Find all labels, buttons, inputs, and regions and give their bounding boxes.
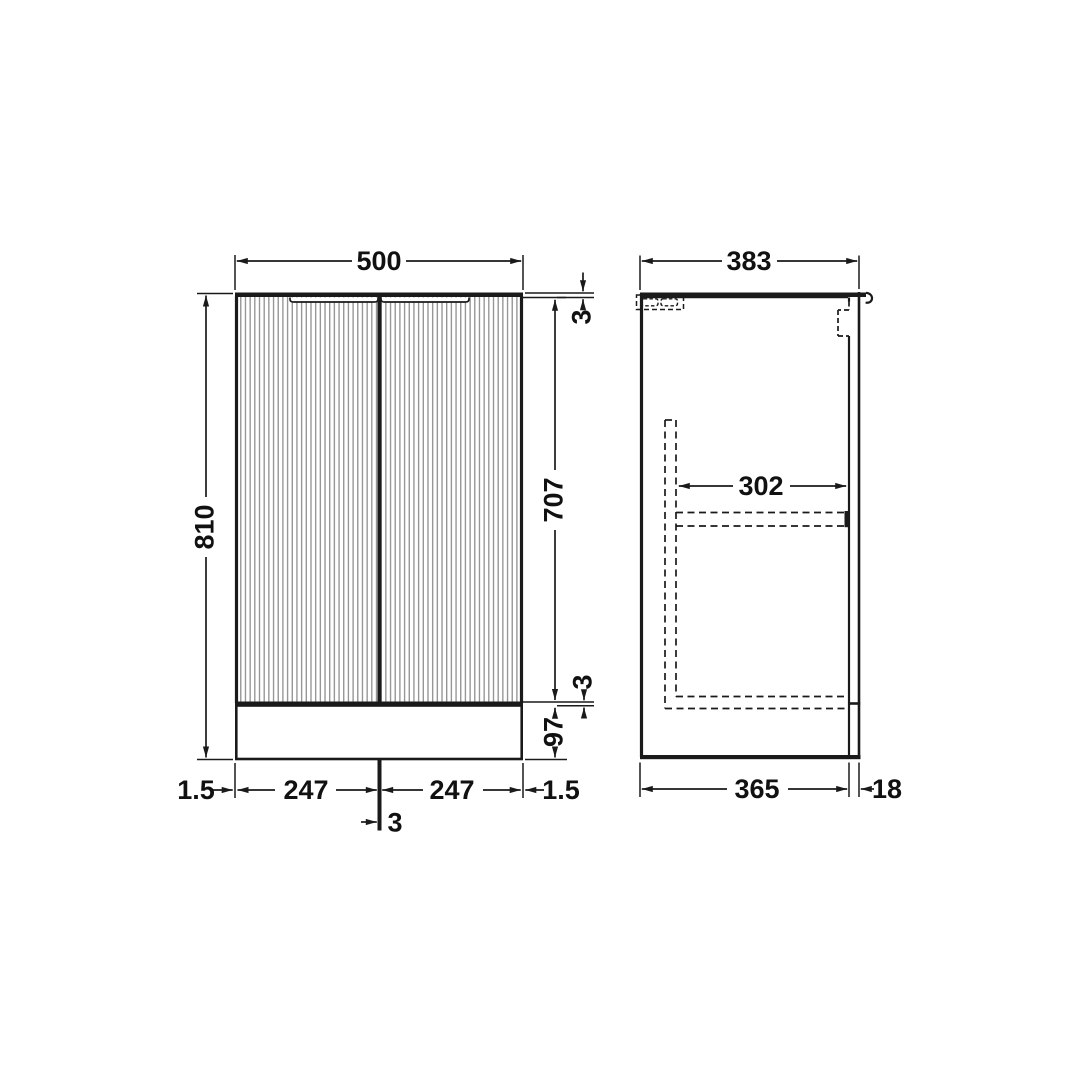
dim-front-centre-gap: 3 [387,808,402,838]
front-worktop [235,293,523,298]
dim-side-carcass-depth: 365 [734,774,779,804]
dim-front-plinth-height: 97 [539,717,569,747]
dim-front-overall-width: 500 [356,246,401,276]
dim-front-left-door-width: 247 [283,775,328,805]
side-back-rail-and-bottom-hidden [665,420,848,709]
side-bracket-slot-left [642,299,659,306]
side-shelf-hidden [676,513,844,527]
side-worktop-nosing [866,293,872,303]
dim-front-worktop-thickness: 3 [567,309,597,324]
dim-front-door-bottom-gap: 3 [568,674,598,689]
dim-front-door-height: 707 [539,477,569,522]
front-plinth [236,706,521,760]
side-shelf-end-cap [845,511,850,527]
side-hinge-recess-hidden [838,302,849,337]
front-left-door-handle-recess [290,298,378,303]
dim-side-door-thickness: 18 [872,774,902,804]
side-worktop [640,293,866,298]
side-dimensions: 383 302 365 18 [640,246,902,804]
front-elevation-view [235,293,523,760]
side-bracket-slot-right [661,299,678,306]
vanity-technical-drawing: 500 810 3 707 3 97 1.5 [0,0,1080,1080]
dim-front-right-edge-gap: 1.5 [542,775,580,805]
dim-front-left-edge-gap: 1.5 [177,775,215,805]
front-right-door-handle-recess [381,298,469,303]
dim-side-shelf-depth: 302 [738,471,783,501]
dim-front-right-door-width: 247 [429,775,474,805]
side-bottom-edge [640,755,861,759]
side-section-view [637,292,873,759]
dim-side-overall-depth: 383 [726,246,771,276]
dim-front-overall-height: 810 [190,504,220,549]
technical-drawing-page: 500 810 3 707 3 97 1.5 [0,0,1080,1080]
